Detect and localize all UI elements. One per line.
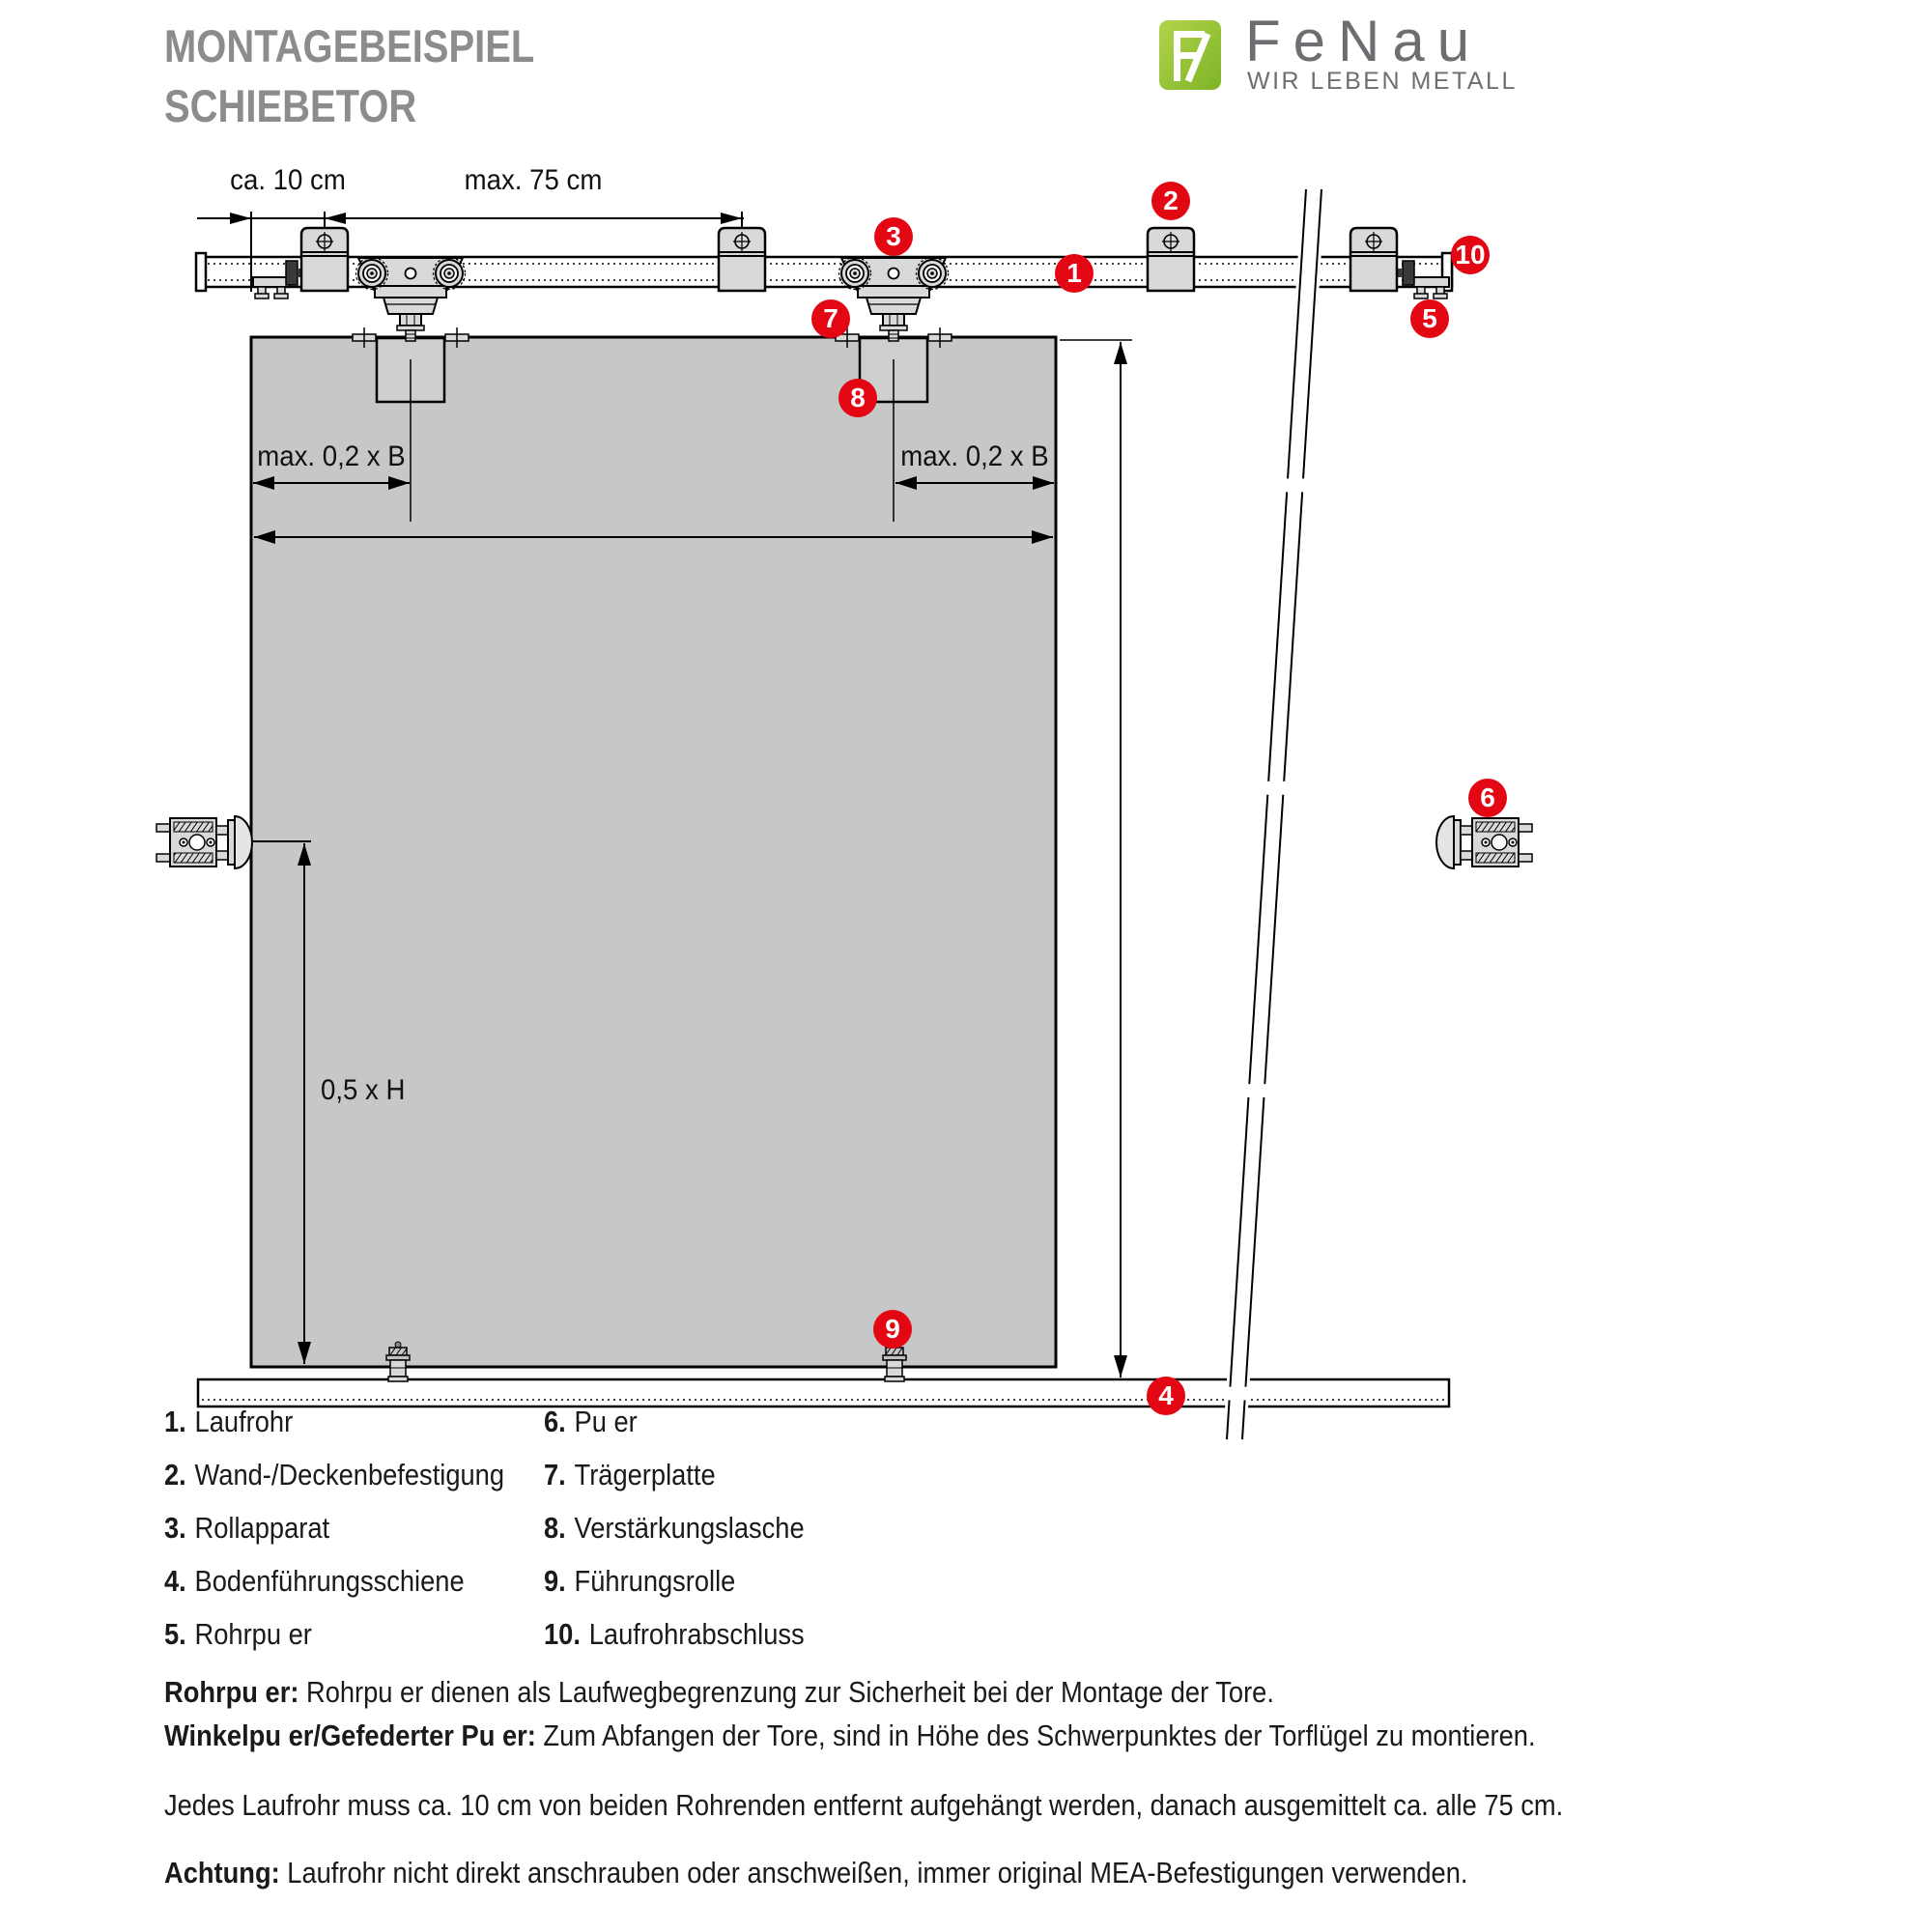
- callout-9-fuehrungsrolle: 9: [873, 1310, 912, 1349]
- legend-column-1: 1.Laufrohr 2.Wand-/Deckenbefestigung 3.R…: [164, 1399, 504, 1664]
- spring-buffer-right: [1436, 816, 1532, 868]
- post-break-lines: [1223, 189, 1325, 1439]
- montage-sheet: MONTAGEBEISPIEL SCHIEBETOR FeNau WIR LEB…: [0, 0, 1932, 1932]
- dim-label-05h: 0,5 x H: [321, 1074, 405, 1107]
- legend-item: 7.Trägerplatte: [544, 1452, 805, 1505]
- door-panel: [251, 337, 1056, 1367]
- callout-1-laufrohr: 1: [1055, 254, 1094, 293]
- note-winkelpuffer: Winkelpu er/Gefederter Pu er: Zum Abfang…: [164, 1719, 1536, 1753]
- spring-buffer-left: [156, 816, 252, 868]
- legend-item: 2.Wand-/Deckenbefestigung: [164, 1452, 504, 1505]
- page-title-line1: MONTAGEBEISPIEL: [164, 19, 534, 72]
- legend-item: 10.Laufrohrabschluss: [544, 1611, 805, 1664]
- legend-item: 5.Rohrpu er: [164, 1611, 504, 1664]
- callout-4-bodenschiene: 4: [1147, 1377, 1185, 1415]
- legend-item: 3.Rollapparat: [164, 1505, 504, 1558]
- dim-label-02b-left: max. 0,2 x B: [251, 440, 412, 473]
- note-aufhaengung: Jedes Laufrohr muss ca. 10 cm von beiden…: [164, 1788, 1563, 1823]
- dim-label-02b-right: max. 0,2 x B: [895, 440, 1055, 473]
- fenau-logo-icon: [1158, 19, 1222, 91]
- dim-height-arrow: [1060, 340, 1132, 1379]
- callout-10-laufrohrabschluss: 10: [1451, 236, 1490, 274]
- note-achtung: Achtung: Laufrohr nicht direkt anschraub…: [164, 1856, 1467, 1890]
- note-rohrpuffer: Rohrpu er: Rohrpu er dienen als Laufwegb…: [164, 1675, 1274, 1710]
- dim-label-ca10cm: ca. 10 cm: [208, 164, 368, 197]
- legend-item: 1.Laufrohr: [164, 1399, 504, 1452]
- callout-6-puffer: 6: [1468, 779, 1507, 817]
- legend-column-2: 6.Pu er 7.Trägerplatte 8.Verstärkungslas…: [544, 1399, 805, 1664]
- guide-roller-left: [386, 1342, 410, 1381]
- callout-3-rollapparat: 3: [874, 217, 913, 256]
- brand-tagline: WIR LEBEN METALL: [1247, 68, 1518, 96]
- roller-unit-right: [839, 258, 949, 342]
- callout-7-traegerplatte: 7: [811, 299, 850, 338]
- brand-wordmark: FeNau: [1245, 8, 1482, 74]
- tube-end-cap-left: [196, 253, 206, 291]
- callout-5-rohrpuffer: 5: [1410, 299, 1449, 338]
- legend-item: 6.Pu er: [544, 1399, 805, 1452]
- callout-2-befestigung: 2: [1151, 182, 1190, 220]
- legend-item: 4.Bodenführungsschiene: [164, 1558, 504, 1611]
- callout-8-verstaerkungslasche: 8: [838, 379, 877, 417]
- legend-item: 8.Verstärkungslasche: [544, 1505, 805, 1558]
- dim-label-max75cm: max. 75 cm: [453, 164, 613, 197]
- page-title-line2: SCHIEBETOR: [164, 79, 416, 132]
- legend-item: 9.Führungsrolle: [544, 1558, 805, 1611]
- roller-unit-left: [356, 258, 466, 342]
